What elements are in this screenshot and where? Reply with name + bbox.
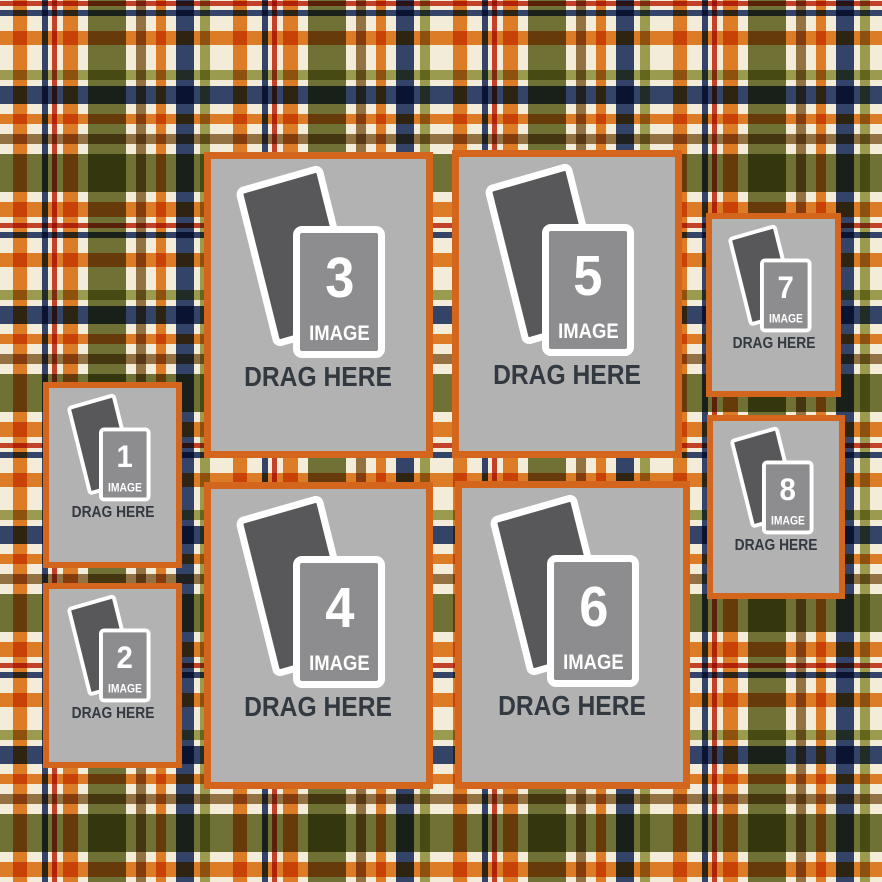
zone-number: 1 — [116, 433, 132, 482]
image-label: IMAGE — [309, 322, 370, 346]
photo-front-icon: 3 IMAGE — [293, 226, 385, 358]
image-label: IMAGE — [558, 320, 619, 344]
photo-stack-icon: 2 IMAGE — [75, 596, 150, 697]
dropzone-8[interactable]: 8 IMAGE DRAG HERE — [707, 415, 845, 599]
image-label: IMAGE — [771, 514, 805, 527]
placeholder-content: 2 IMAGE DRAG HERE — [65, 596, 159, 722]
photo-stack-icon: 6 IMAGE — [505, 497, 639, 677]
photo-stack-icon: 5 IMAGE — [500, 166, 634, 346]
drag-here-label: DRAG HERE — [732, 334, 815, 352]
zone-number: 8 — [780, 466, 796, 515]
placeholder-content: 6 IMAGE DRAG HERE — [488, 497, 656, 722]
zone-number: 3 — [325, 235, 354, 322]
zone-number: 5 — [573, 233, 602, 320]
photo-stack-icon: 8 IMAGE — [738, 428, 813, 529]
drag-here-label: DRAG HERE — [499, 690, 647, 722]
photo-front-icon: 1 IMAGE — [99, 427, 151, 501]
placeholder-content: 8 IMAGE DRAG HERE — [729, 428, 823, 554]
image-label: IMAGE — [563, 651, 624, 675]
dropzone-7[interactable]: 7 IMAGE DRAG HERE — [706, 213, 841, 397]
placeholder-content: 1 IMAGE DRAG HERE — [65, 395, 159, 521]
dropzone-2[interactable]: 2 IMAGE DRAG HERE — [43, 583, 182, 768]
photo-stack-icon: 4 IMAGE — [251, 498, 385, 678]
zone-number: 4 — [325, 565, 354, 652]
photo-front-icon: 5 IMAGE — [542, 224, 634, 356]
image-label: IMAGE — [768, 312, 802, 325]
dropzone-6[interactable]: 6 IMAGE DRAG HERE — [455, 481, 690, 789]
image-label: IMAGE — [107, 481, 141, 494]
photo-front-icon: 8 IMAGE — [762, 460, 814, 534]
image-label: IMAGE — [107, 682, 141, 695]
photo-stack-icon: 1 IMAGE — [75, 395, 150, 496]
placeholder-content: 5 IMAGE DRAG HERE — [483, 166, 651, 391]
photo-front-icon: 7 IMAGE — [760, 258, 812, 332]
drag-here-label: DRAG HERE — [493, 359, 641, 391]
dropzone-4[interactable]: 4 IMAGE DRAG HERE — [204, 482, 433, 789]
drag-here-label: DRAG HERE — [245, 691, 393, 723]
collage-canvas: 1 IMAGE DRAG HERE 2 IMAGE DRAG HERE 3 — [0, 0, 882, 882]
photo-front-icon: 4 IMAGE — [293, 556, 385, 688]
zone-number: 2 — [116, 634, 132, 683]
photo-stack-icon: 3 IMAGE — [251, 168, 385, 348]
image-label: IMAGE — [309, 652, 370, 676]
drag-here-label: DRAG HERE — [71, 704, 154, 722]
photo-stack-icon: 7 IMAGE — [736, 226, 811, 327]
zone-number: 6 — [579, 564, 608, 651]
placeholder-content: 7 IMAGE DRAG HERE — [726, 226, 820, 352]
drag-here-label: DRAG HERE — [245, 361, 393, 393]
dropzone-5[interactable]: 5 IMAGE DRAG HERE — [452, 150, 682, 458]
photo-front-icon: 6 IMAGE — [547, 555, 639, 687]
zone-number: 7 — [777, 264, 793, 313]
photo-front-icon: 2 IMAGE — [99, 628, 151, 702]
dropzone-3[interactable]: 3 IMAGE DRAG HERE — [204, 152, 433, 458]
placeholder-content: 4 IMAGE DRAG HERE — [234, 498, 402, 723]
placeholder-content: 3 IMAGE DRAG HERE — [234, 168, 402, 393]
drag-here-label: DRAG HERE — [71, 503, 154, 521]
drag-here-label: DRAG HERE — [735, 536, 818, 554]
dropzone-1[interactable]: 1 IMAGE DRAG HERE — [43, 382, 182, 568]
